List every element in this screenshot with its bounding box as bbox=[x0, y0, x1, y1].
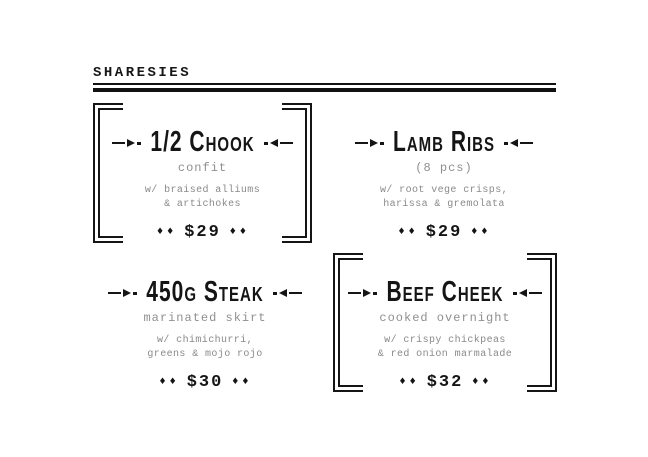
item-title: Lamb Ribs bbox=[393, 127, 495, 159]
arrow-left-icon bbox=[504, 139, 533, 147]
item-title-row: Lamb Ribs bbox=[355, 128, 533, 158]
arrow-right-icon bbox=[355, 139, 384, 147]
arrow-right-icon bbox=[112, 139, 141, 147]
menu-item-content: 450g Steak marinated skirt w/ chimichurr… bbox=[95, 253, 315, 393]
arrow-right-icon bbox=[108, 289, 137, 297]
item-description-line: & artichokes bbox=[145, 198, 260, 212]
arrow-left-icon bbox=[264, 139, 293, 147]
section-title: SHARESIES bbox=[93, 65, 191, 81]
diamond-ornament-icon: ♦♦ bbox=[156, 228, 176, 237]
item-description-line: w/ chimichurri, bbox=[147, 334, 262, 348]
item-description-line: w/ crispy chickpeas bbox=[378, 334, 512, 348]
diamond-ornament-icon: ♦♦ bbox=[229, 228, 249, 237]
item-price-row: ♦♦ $30 ♦♦ bbox=[159, 373, 252, 392]
item-description-line: greens & mojo rojo bbox=[147, 348, 262, 362]
header-double-rule bbox=[93, 83, 556, 92]
item-subtitle: cooked overnight bbox=[379, 311, 510, 325]
item-description: w/ chimichurri, greens & mojo rojo bbox=[147, 334, 262, 362]
item-price: $29 bbox=[184, 223, 221, 242]
arrow-right-icon bbox=[348, 289, 377, 297]
item-price-row: ♦♦ $29 ♦♦ bbox=[398, 223, 491, 242]
diamond-ornament-icon: ♦♦ bbox=[470, 228, 490, 237]
menu-item-half-chook: 1/2 Chook confit w/ braised alliums & ar… bbox=[93, 103, 312, 243]
item-title-row: 1/2 Chook bbox=[112, 128, 292, 158]
diamond-ornament-icon: ♦♦ bbox=[399, 378, 419, 387]
item-price: $30 bbox=[187, 373, 224, 392]
menu-item-lamb-ribs: Lamb Ribs (8 pcs) w/ root vege crisps, h… bbox=[334, 103, 554, 243]
diamond-ornament-icon: ♦♦ bbox=[159, 378, 179, 387]
item-price: $29 bbox=[426, 223, 463, 242]
diamond-ornament-icon: ♦♦ bbox=[398, 228, 418, 237]
item-description: w/ crispy chickpeas & red onion marmalad… bbox=[378, 334, 512, 362]
item-subtitle: confit bbox=[178, 161, 227, 175]
item-description-line: harissa & gremolata bbox=[380, 198, 508, 212]
item-title: Beef Cheek bbox=[386, 277, 503, 309]
menu-section-header: SHARESIES bbox=[93, 63, 556, 92]
item-price-row: ♦♦ $32 ♦♦ bbox=[399, 373, 492, 392]
item-price-row: ♦♦ $29 ♦♦ bbox=[156, 223, 249, 242]
item-title: 450g Steak bbox=[146, 277, 263, 309]
item-title-row: 450g Steak bbox=[108, 278, 301, 308]
item-description: w/ braised alliums & artichokes bbox=[145, 184, 260, 212]
arrow-left-icon bbox=[273, 289, 302, 297]
item-title: 1/2 Chook bbox=[150, 127, 254, 159]
item-title-row: Beef Cheek bbox=[348, 278, 541, 308]
item-description-line: w/ root vege crisps, bbox=[380, 184, 508, 198]
item-price: $32 bbox=[427, 373, 464, 392]
item-description: w/ root vege crisps, harissa & gremolata bbox=[380, 184, 508, 212]
item-description-line: w/ braised alliums bbox=[145, 184, 260, 198]
menu-item-content: Beef Cheek cooked overnight w/ crispy ch… bbox=[333, 253, 557, 392]
menu-item-beef-cheek: Beef Cheek cooked overnight w/ crispy ch… bbox=[333, 253, 557, 392]
menu-item-content: 1/2 Chook confit w/ braised alliums & ar… bbox=[93, 103, 312, 243]
menu-item-content: Lamb Ribs (8 pcs) w/ root vege crisps, h… bbox=[334, 103, 554, 243]
item-subtitle: (8 pcs) bbox=[415, 161, 472, 175]
menu-page: SHARESIES 1/2 Chook confit w/ braised al… bbox=[0, 0, 648, 457]
arrow-left-icon bbox=[513, 289, 542, 297]
menu-item-450g-steak: 450g Steak marinated skirt w/ chimichurr… bbox=[95, 253, 315, 393]
item-description-line: & red onion marmalade bbox=[378, 348, 512, 362]
item-subtitle: marinated skirt bbox=[143, 311, 266, 325]
diamond-ornament-icon: ♦♦ bbox=[471, 378, 491, 387]
diamond-ornament-icon: ♦♦ bbox=[231, 378, 251, 387]
